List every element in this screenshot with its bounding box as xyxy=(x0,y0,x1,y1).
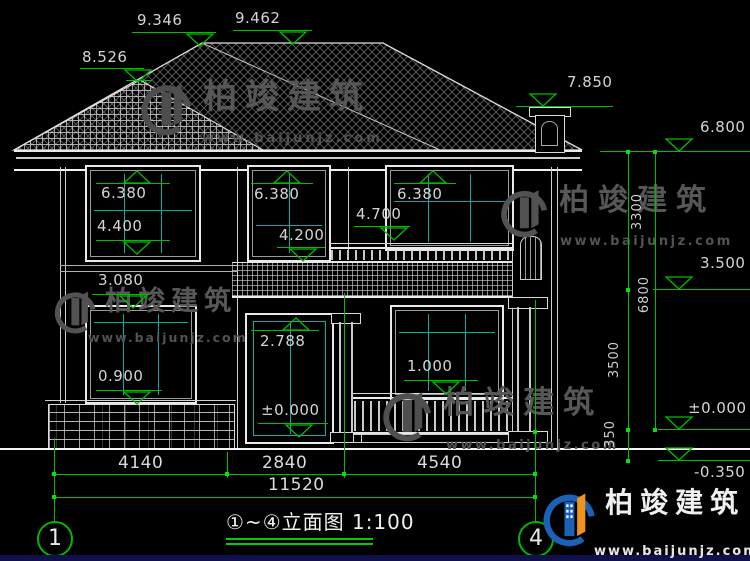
level-second-floor: 3.500 xyxy=(700,256,745,271)
level-eave: 6.800 xyxy=(700,120,745,135)
brand-name-text: 柏竣建筑 xyxy=(605,486,745,519)
level-window2-head-mid: 6.380 xyxy=(254,187,299,202)
vdim-3500: 3500 xyxy=(608,341,621,378)
vdim-6800: 6800 xyxy=(638,276,651,313)
brand-site-text: www.baijunjz.com xyxy=(594,545,750,558)
wall-left-corner xyxy=(60,167,61,403)
level-triangle xyxy=(185,33,215,47)
brand-logo-footer: 柏竣建筑 www.baijunjz.com xyxy=(540,489,750,558)
watermark-site-text: www.baijunjz.com xyxy=(202,132,383,145)
dim-2840: 2840 xyxy=(262,455,307,472)
level-grade: -0.350 xyxy=(694,465,745,480)
balcony-balustrade-2f xyxy=(330,243,512,263)
level-window2-sill-mid: 4.200 xyxy=(279,228,324,243)
title-underline-2 xyxy=(226,543,373,545)
watermark-site-text: www.baijunjz.com xyxy=(560,235,733,248)
level-triangle xyxy=(278,31,308,45)
level-triangle xyxy=(284,424,314,438)
level-first-floor-right: ±0.000 xyxy=(688,401,747,416)
view-title: ①~④立面图 1:100 xyxy=(226,512,415,532)
level-triangle xyxy=(122,170,152,184)
vdim-350: 350 xyxy=(604,420,617,448)
level-triangle xyxy=(418,170,448,184)
level-triangle xyxy=(664,447,694,461)
level-first-floor-door: ±0.000 xyxy=(261,403,320,418)
floor-band-line-2 xyxy=(60,271,238,272)
axis-bubble-1: 1 xyxy=(37,521,73,557)
brand-logo-icon xyxy=(380,388,434,442)
brand-logo-icon xyxy=(540,489,598,547)
watermark-brand-text: 柏竣建筑 xyxy=(203,77,371,117)
ground-line xyxy=(0,448,750,450)
watermark-bottom: 柏竣建筑 www.baijunjz.com xyxy=(380,388,619,452)
level-ridge-left: 9.346 xyxy=(137,13,182,28)
floor-band-line-1 xyxy=(60,265,238,266)
porch-column-shaft-l xyxy=(339,322,341,432)
level-triangle xyxy=(288,248,318,262)
level-triangle xyxy=(118,295,148,309)
watermark-brand-text: 柏竣建筑 xyxy=(443,385,603,421)
pilaster-capital xyxy=(508,297,548,309)
watermark-site-text: www.baijunjz.com xyxy=(446,439,619,452)
dim-11520: 11520 xyxy=(268,477,325,494)
level-porch-rail: 1.000 xyxy=(407,359,452,374)
brand-logo-icon xyxy=(138,80,194,136)
level-triangle xyxy=(122,241,152,255)
title-underline-1 xyxy=(226,538,373,540)
elevation-drawing-canvas: 9.346 9.462 8.526 7.850 6.800 3.500 ±0.0… xyxy=(0,0,750,561)
porch-column-capital xyxy=(331,313,361,324)
watermark-left: 柏竣建筑 www.baijunjz.com xyxy=(52,288,248,345)
wall-left-corner-inner xyxy=(65,167,66,403)
vdim-3300: 3300 xyxy=(631,193,644,230)
level-window2-head-left: 6.380 xyxy=(101,186,146,201)
watermark-right: 柏竣建筑 www.baijunjz.com xyxy=(498,186,733,248)
level-triangle xyxy=(528,93,558,107)
level-ridge-main: 9.462 xyxy=(235,11,280,26)
level-triangle xyxy=(281,317,311,331)
level-triangle xyxy=(122,391,152,405)
level-triangle xyxy=(664,276,694,290)
level-triangle xyxy=(431,381,461,395)
level-window2-head-right: 6.380 xyxy=(397,187,442,202)
level-triangle xyxy=(664,416,694,430)
dim-4540: 4540 xyxy=(417,455,462,472)
dim-4140: 4140 xyxy=(118,455,163,472)
level-triangle xyxy=(379,227,409,241)
level-window2-sill-left: 4.400 xyxy=(97,219,142,234)
axis-1-label: 1 xyxy=(48,528,62,550)
watermark-site-text: www.baijunjz.com xyxy=(88,332,248,345)
balcony-frieze-band xyxy=(232,262,512,298)
level-chimney: 7.850 xyxy=(567,75,612,90)
level-door-head: 2.788 xyxy=(260,334,305,349)
level-triangle xyxy=(664,138,694,152)
level-balcony-rail: 4.700 xyxy=(356,207,401,222)
level-triangle xyxy=(272,170,302,184)
level-window1-head: 3.080 xyxy=(98,273,143,288)
stone-veneer-base xyxy=(48,404,235,450)
level-window1-sill: 0.900 xyxy=(98,369,143,384)
brand-logo-icon xyxy=(498,186,550,238)
level-hip-front: 8.526 xyxy=(82,50,127,65)
chimney-arch xyxy=(541,121,558,146)
watermark-top: 柏竣建筑 www.baijunjz.com xyxy=(138,80,383,145)
